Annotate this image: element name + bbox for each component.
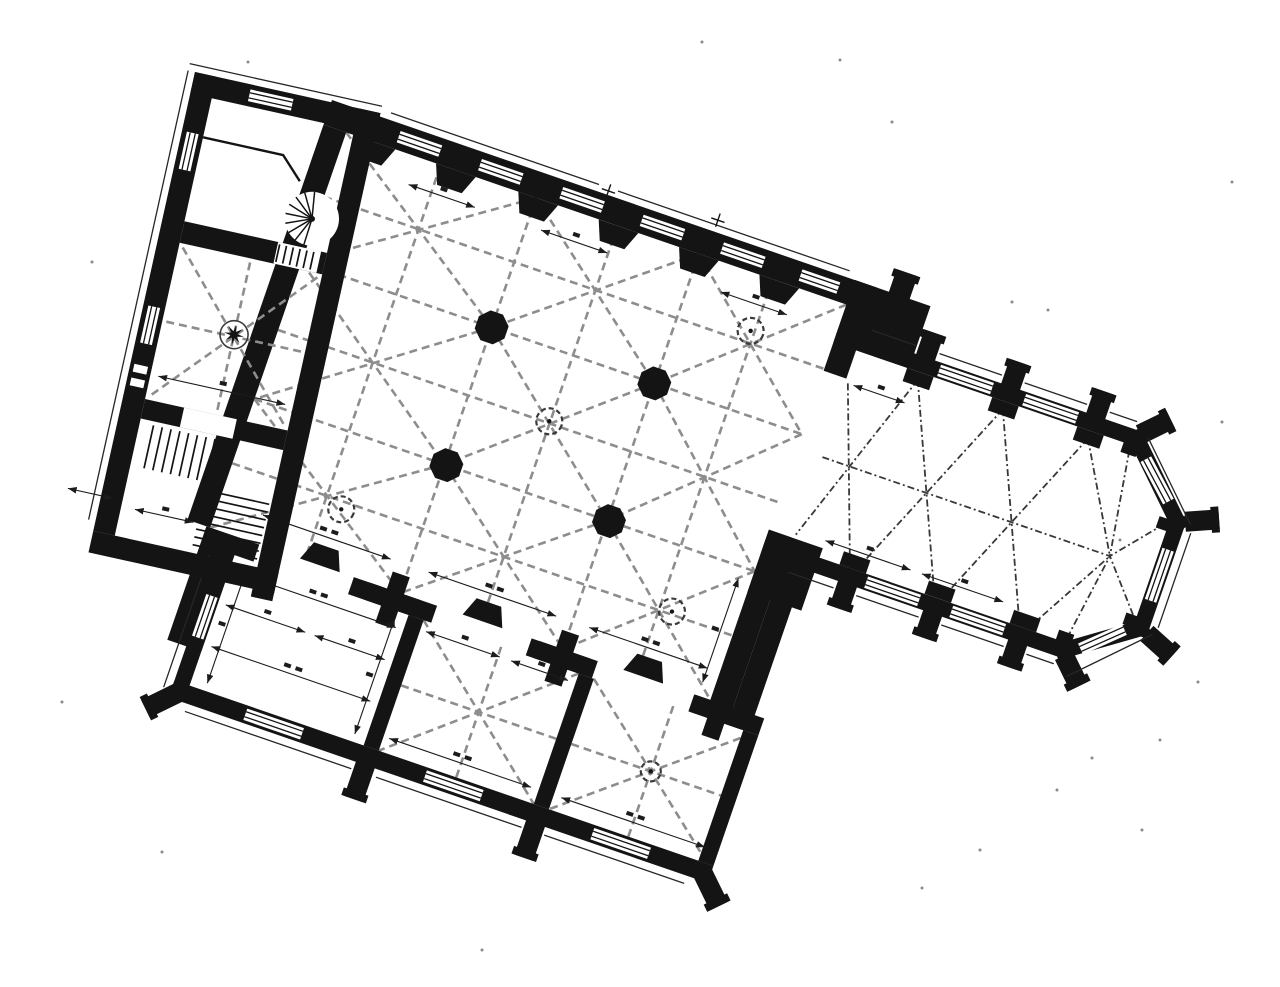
dimension-figure-mark xyxy=(866,546,874,552)
church-floor-plan xyxy=(0,0,1280,987)
dimension-line xyxy=(211,647,370,702)
dimension-figure-mark xyxy=(626,811,634,817)
buttress xyxy=(511,818,548,862)
dimension-figure-mark xyxy=(295,666,303,672)
pier xyxy=(472,307,512,347)
scan-speck xyxy=(839,59,842,62)
dimension-figure-mark xyxy=(320,526,328,532)
wall-pilaster xyxy=(623,651,669,684)
scan-speck xyxy=(247,61,250,64)
dimension-figure-mark xyxy=(538,661,546,667)
dimension-line xyxy=(226,605,305,632)
dimension-figure-mark xyxy=(219,381,227,386)
dimension-figure-mark xyxy=(284,662,292,668)
stair-step-line xyxy=(179,433,189,476)
wall xyxy=(93,72,216,536)
wall xyxy=(534,674,594,810)
stair-step-line xyxy=(162,429,172,472)
scan-speck xyxy=(701,41,704,44)
stair-step-line xyxy=(144,425,154,468)
scan-speck xyxy=(1141,829,1144,832)
scan-speck xyxy=(1231,181,1234,184)
wall xyxy=(698,730,758,866)
dimension-figure-mark xyxy=(752,294,760,300)
dimension-figure-mark xyxy=(652,640,660,646)
wall-pilaster xyxy=(463,596,509,629)
dimension-figure-mark xyxy=(637,815,645,821)
scan-speck xyxy=(891,121,894,124)
net-vault-rib xyxy=(796,359,918,556)
stair-step-line xyxy=(153,427,163,470)
dimension-figure-mark xyxy=(331,529,339,535)
dimension-figure-mark xyxy=(641,636,649,642)
plinth-outline xyxy=(1110,412,1137,421)
dimension-figure-mark xyxy=(485,583,493,589)
dimension-figure-mark xyxy=(162,506,170,511)
dimension-figure-mark xyxy=(366,671,374,677)
dimension-figure-mark xyxy=(461,635,469,641)
buttress xyxy=(341,759,378,803)
dimension-figure-mark xyxy=(453,751,461,757)
star-boss xyxy=(222,323,246,347)
scan-speck xyxy=(1047,309,1050,312)
dimension-figure-mark xyxy=(218,621,226,627)
dimension-figure-mark xyxy=(309,589,317,595)
plinth-outline xyxy=(1026,654,1053,663)
wall-pilaster xyxy=(300,540,346,573)
pier xyxy=(589,501,629,541)
scan-speck xyxy=(91,261,94,264)
scan-speck xyxy=(161,851,164,854)
buttress xyxy=(1184,506,1220,534)
dimension-figure-mark xyxy=(264,609,272,615)
scan-speck xyxy=(1056,789,1059,792)
dimension-line xyxy=(158,376,285,404)
dimension-figure-mark xyxy=(572,232,580,238)
dimension-figure-mark xyxy=(961,578,969,584)
boss-center-dot xyxy=(338,507,344,513)
dimension-figure-mark xyxy=(464,755,472,761)
scan-speck xyxy=(1091,757,1094,760)
scan-speck xyxy=(921,887,924,890)
vault-rib xyxy=(482,226,618,621)
stair-step-line xyxy=(188,435,198,478)
scan-speck xyxy=(481,949,484,952)
dimension-line xyxy=(135,509,194,522)
plinth-outline xyxy=(89,70,189,519)
dimension-figure-mark xyxy=(320,592,328,598)
scan-speck xyxy=(1119,539,1122,542)
scan-speck xyxy=(979,849,982,852)
stair-step-line xyxy=(170,431,180,474)
boss-center-dot xyxy=(748,328,754,334)
net-vault-rib xyxy=(822,457,1109,556)
scanned-floor-plan-page xyxy=(0,0,1280,987)
vault-rib xyxy=(563,254,699,649)
scan-speck xyxy=(1159,739,1162,742)
net-vault-rib xyxy=(1054,439,1144,557)
dimension-figure-mark xyxy=(348,638,356,644)
scan-speck xyxy=(1197,681,1200,684)
scan-speck xyxy=(1221,421,1224,424)
vault-rib xyxy=(456,647,501,777)
dimension-figure-mark xyxy=(496,586,504,592)
pier xyxy=(634,363,674,403)
dimension-figure-mark xyxy=(877,384,885,390)
scan-speck xyxy=(61,701,64,704)
interior-wall-line xyxy=(198,137,304,181)
pier xyxy=(426,445,466,485)
scan-speck xyxy=(1011,301,1014,304)
